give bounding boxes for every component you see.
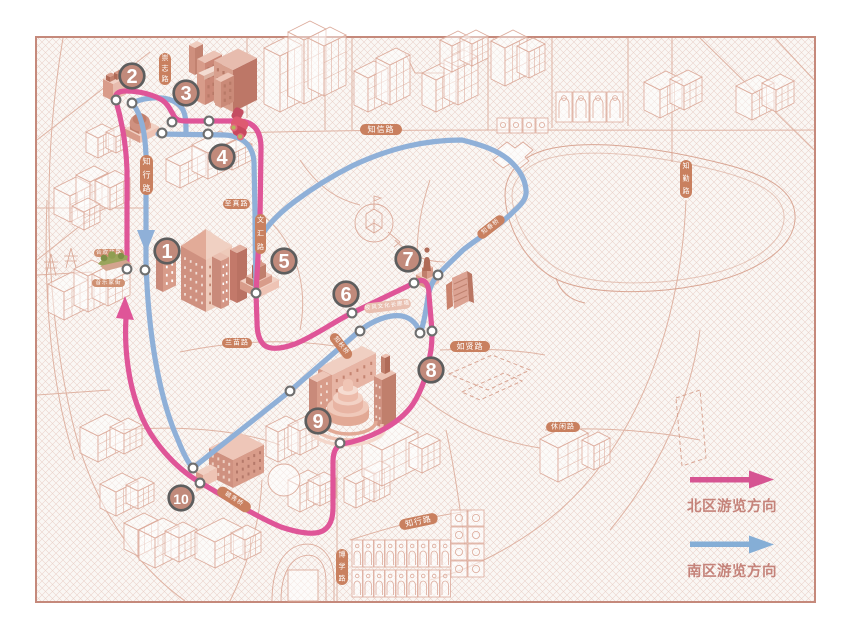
svg-text:至真路: 至真路 xyxy=(225,199,249,208)
svg-text:路: 路 xyxy=(143,183,151,193)
svg-text:如贤路: 如贤路 xyxy=(457,341,484,351)
svg-text:音乐家街: 音乐家街 xyxy=(95,278,121,286)
svg-text:6: 6 xyxy=(340,284,351,306)
svg-text:知: 知 xyxy=(683,161,690,170)
svg-text:休闲路: 休闲路 xyxy=(551,422,575,431)
svg-text:路: 路 xyxy=(683,186,690,195)
svg-text:行: 行 xyxy=(143,170,151,180)
svg-text:2: 2 xyxy=(126,66,137,88)
svg-text:北区游览方向: 北区游览方向 xyxy=(687,497,777,515)
svg-text:路: 路 xyxy=(339,574,346,583)
svg-text:3: 3 xyxy=(180,83,191,105)
svg-text:5: 5 xyxy=(278,251,289,273)
svg-text:兰苗路: 兰苗路 xyxy=(225,338,249,347)
svg-text:4: 4 xyxy=(216,147,228,169)
svg-text:汇: 汇 xyxy=(257,230,264,238)
svg-text:博: 博 xyxy=(339,550,346,559)
svg-text:路: 路 xyxy=(257,242,264,251)
svg-text:10: 10 xyxy=(173,491,189,507)
svg-text:知信路: 知信路 xyxy=(368,124,395,134)
svg-text:志: 志 xyxy=(162,64,169,73)
svg-text:8: 8 xyxy=(425,360,436,382)
svg-text:路: 路 xyxy=(162,74,169,83)
svg-text:学: 学 xyxy=(339,562,346,571)
svg-text:7: 7 xyxy=(402,249,413,271)
svg-text:南区游览方向: 南区游览方向 xyxy=(687,562,777,580)
svg-text:知: 知 xyxy=(143,156,151,166)
svg-text:勤: 勤 xyxy=(683,174,690,183)
svg-text:9: 9 xyxy=(312,411,323,433)
svg-text:1: 1 xyxy=(161,241,172,263)
svg-text:崇: 崇 xyxy=(162,54,169,62)
svg-text:文: 文 xyxy=(257,215,264,224)
